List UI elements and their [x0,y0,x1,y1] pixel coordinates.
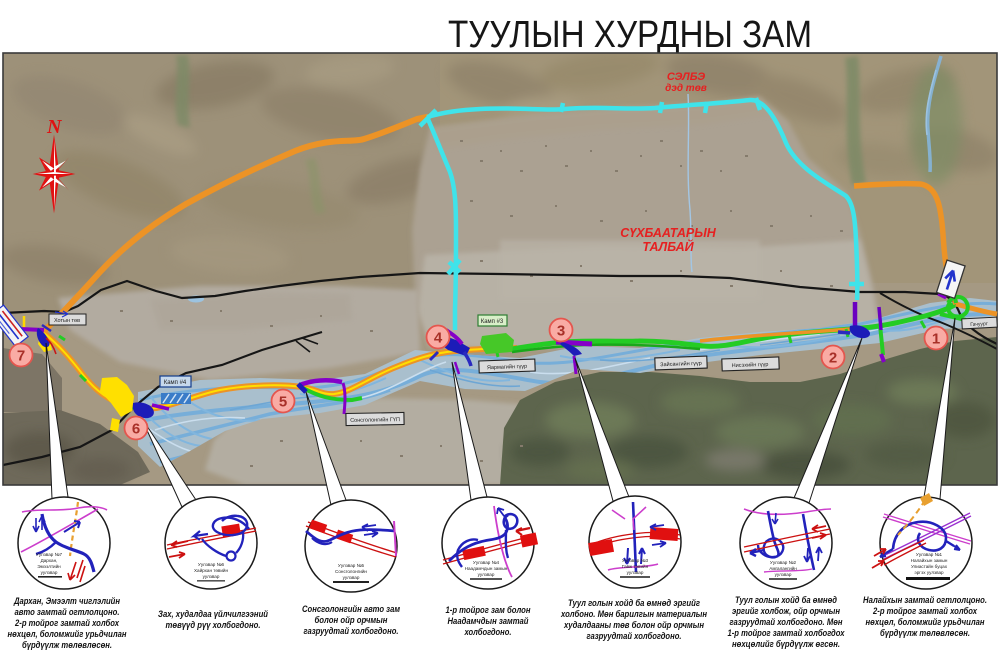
svg-text:Зах, худалдаа үйлчилгээний: Зах, худалдаа үйлчилгээний [158,609,268,619]
svg-text:Уулзвар №1: Уулзвар №1 [916,552,943,557]
svg-text:уулзвар: уулзвар [41,570,58,575]
svg-text:2: 2 [829,350,837,367]
svg-text:уулзвар: уулзвар [203,574,220,579]
svg-text:4: 4 [434,330,443,347]
svg-text:газруудтай холбогдоно. Мөн: газруудтай холбогдоно. Мөн [730,617,843,627]
svg-text:уулзвар: уулзвар [627,570,644,575]
svg-text:холбоно. Мөн барилгын материал: холбоно. Мөн барилгын материалын [560,609,707,619]
svg-text:газруудтай холбогдоно.: газруудтай холбогдоно. [304,626,399,636]
svg-text:бүрдүүлж төлөвлөсөн.: бүрдүүлж төлөвлөсөн. [22,640,112,650]
svg-text:Амгалангийн: Амгалангийн [769,565,797,571]
svg-text:Дархан, Эмээлт чиглэлийн: Дархан, Эмээлт чиглэлийн [13,596,120,606]
svg-text:газруудтай холбогдоно.: газруудтай холбогдоно. [587,631,682,641]
svg-text:Сонсголонгийн ГҮП: Сонсголонгийн ГҮП [350,416,400,424]
svg-text:Туул голын хойд ба өмнөд эргий: Туул голын хойд ба өмнөд эргийг [568,598,700,608]
svg-text:2-р тойрог замтай холбох: 2-р тойрог замтай холбох [14,618,120,628]
svg-text:Хотын төв: Хотын төв [54,318,80,324]
svg-text:холбогдоно.: холбогдоно. [464,627,512,637]
svg-text:СЭЛБЭ: СЭЛБЭ [667,71,705,83]
svg-text:уулзвар: уулзвар [775,572,792,577]
svg-text:Уулзвар №4: Уулзвар №4 [473,560,500,565]
svg-text:7: 7 [17,348,25,365]
svg-text:нөхцөл, боломжийг урьдчилан: нөхцөл, боломжийг урьдчилан [8,629,127,639]
svg-text:Дархан,: Дархан, [41,558,58,563]
svg-text:Хайрхан төвийн: Хайрхан төвийн [194,567,229,573]
svg-text:Налайхын замтай огтлолцоно.: Налайхын замтай огтлолцоно. [863,595,987,605]
svg-text:Сонсголонгийн авто зам: Сонсголонгийн авто зам [302,604,400,614]
svg-text:ТУУЛЫН ХУРДНЫ ЗАМ: ТУУЛЫН ХУРДНЫ ЗАМ [448,14,812,56]
svg-text:эргэх уулзвар: эргэх уулзвар [914,570,944,575]
svg-text:3: 3 [557,323,565,340]
svg-text:бүрдүүлж төлөвлөсөн.: бүрдүүлж төлөвлөсөн. [880,628,970,638]
svg-text:Нисэхийн гүүр: Нисэхийн гүүр [732,361,769,369]
svg-text:Камп #4: Камп #4 [164,380,187,386]
svg-text:худалдааны төв болон ойр орчмы: худалдааны төв болон ойр орчмын [563,620,704,630]
svg-text:5: 5 [279,394,287,411]
svg-text:1-р тойрог замтай холбогдох: 1-р тойрог замтай холбогдох [728,628,846,638]
svg-text:Уулзвар №5: Уулзвар №5 [338,563,365,568]
svg-text:ТАЛБАЙ: ТАЛБАЙ [642,238,694,254]
svg-text:төвүүд рүү холбогдоно.: төвүүд рүү холбогдоно. [166,620,261,630]
svg-text:Камп #3: Камп #3 [481,319,504,325]
svg-text:Улиастайн буцах: Улиастайн буцах [911,563,948,569]
svg-text:Уулзвар №6: Уулзвар №6 [198,562,225,567]
svg-text:нөхцөл, боломжийг урьдчилан: нөхцөл, боломжийг урьдчилан [866,617,985,627]
svg-text:Налайхын замын: Налайхын замын [911,557,948,563]
svg-text:дэд төв: дэд төв [665,83,707,94]
svg-text:2-р тойрог замтай холбох: 2-р тойрог замтай холбох [872,606,978,616]
svg-text:Яармагийн гүүр: Яармагийн гүүр [487,363,527,371]
svg-text:Уулзвар №3: Уулзвар №3 [622,558,649,563]
svg-text:авто замтай огтлолцоно.: авто замтай огтлолцоно. [15,607,120,617]
svg-text:1-р тойрог зам болон: 1-р тойрог зам болон [446,605,531,615]
svg-text:болон ойр орчмын: болон ойр орчмын [315,615,388,625]
svg-text:Туул голын хойд ба өмнөд: Туул голын хойд ба өмнөд [735,595,837,605]
svg-text:Гачуурт: Гачуурт [970,321,989,328]
svg-text:Сонсголонгийн: Сонсголонгийн [335,568,367,574]
svg-text:Гавж төвийн: Гавж төвийн [622,563,649,569]
svg-text:1: 1 [932,331,940,348]
svg-text:Эмээлтийн: Эмээлтийн [37,563,61,569]
svg-text:6: 6 [132,421,140,438]
svg-text:Уулзвар №7: Уулзвар №7 [36,552,63,557]
svg-text:Уулзвар №2: Уулзвар №2 [770,560,797,565]
svg-text:эргийг холбож, ойр орчмын: эргийг холбож, ойр орчмын [732,606,840,616]
svg-text:Наадамчдын замын: Наадамчдын замын [465,566,508,571]
svg-text:Зайсангийн гүүр: Зайсангийн гүүр [660,360,702,368]
svg-text:Наадамчдын замтай: Наадамчдын замтай [448,616,529,626]
svg-text:нөхцөлийг бүрдүүлж өгсөн.: нөхцөлийг бүрдүүлж өгсөн. [732,639,840,649]
svg-text:уулзвар: уулзвар [478,572,495,577]
svg-text:N: N [46,116,63,138]
svg-text:СҮХБААТАРЫН: СҮХБААТАРЫН [620,226,717,240]
svg-text:уулзвар: уулзвар [343,575,360,580]
